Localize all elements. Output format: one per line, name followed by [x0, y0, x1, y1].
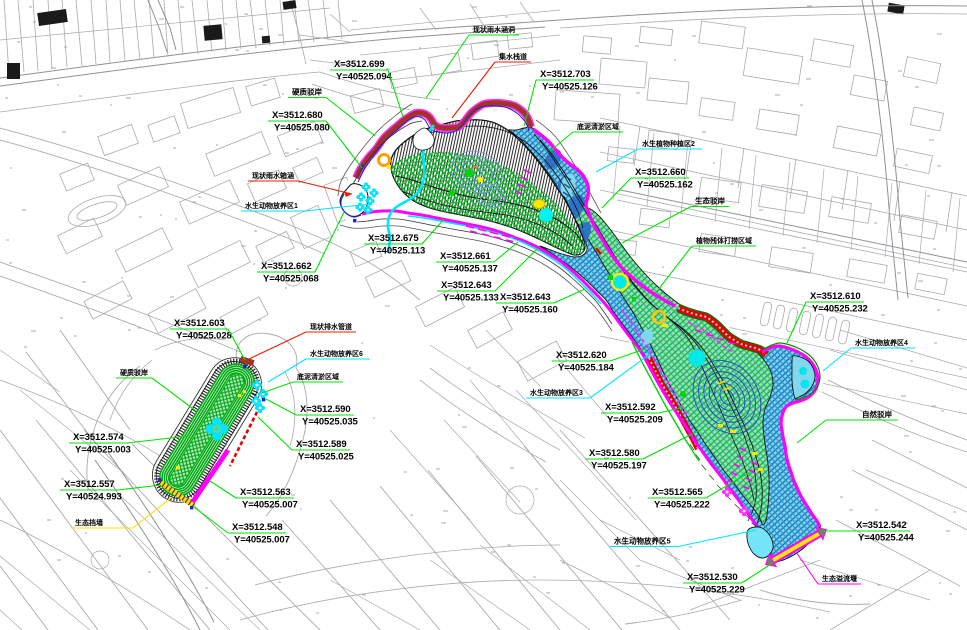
- svg-text:X=3512.643: X=3512.643: [500, 292, 551, 303]
- svg-text:水生动物放养区5: 水生动物放养区5: [614, 536, 671, 546]
- svg-text:X=3512.680: X=3512.680: [272, 110, 323, 121]
- svg-text:X=3512.660: X=3512.660: [635, 167, 686, 178]
- svg-text:X=3512.610: X=3512.610: [810, 291, 861, 302]
- svg-text:水生动物放养区1: 水生动物放养区1: [245, 201, 298, 210]
- svg-text:Y=40525.094: Y=40525.094: [336, 72, 393, 83]
- svg-text:生态溢流堰: 生态溢流堰: [822, 574, 857, 583]
- svg-text:自然驳岸: 自然驳岸: [862, 409, 892, 419]
- svg-text:Y=40525.025: Y=40525.025: [298, 452, 355, 463]
- svg-text:Y=40525.133: Y=40525.133: [443, 293, 499, 304]
- svg-text:Y=40525.232: Y=40525.232: [812, 304, 868, 315]
- svg-text:Y=40525.197: Y=40525.197: [591, 461, 647, 472]
- svg-text:硬质驳岸: 硬质驳岸: [120, 368, 148, 377]
- svg-text:Y=40525.003: Y=40525.003: [75, 445, 131, 456]
- svg-text:X=3512.548: X=3512.548: [232, 522, 283, 533]
- svg-text:X=3512.662: X=3512.662: [261, 261, 312, 272]
- svg-text:Y=40525.137: Y=40525.137: [442, 264, 498, 275]
- svg-text:现状排水管道: 现状排水管道: [310, 322, 352, 331]
- svg-text:X=3512.574: X=3512.574: [73, 432, 124, 443]
- svg-text:X=3512.643: X=3512.643: [441, 280, 492, 291]
- svg-text:底泥清淤区域: 底泥清淤区域: [577, 122, 619, 131]
- svg-text:现状雨水涵洞: 现状雨水涵洞: [473, 25, 515, 34]
- svg-text:X=3512.603: X=3512.603: [174, 318, 225, 329]
- svg-text:X=3512.565: X=3512.565: [652, 487, 703, 498]
- svg-text:X=3512.675: X=3512.675: [368, 233, 419, 244]
- svg-text:Y=40524.993: Y=40524.993: [66, 492, 122, 503]
- svg-text:X=3512.661: X=3512.661: [440, 251, 491, 262]
- svg-text:X=3512.620: X=3512.620: [556, 350, 607, 361]
- svg-text:Y=40525.126: Y=40525.126: [542, 82, 598, 93]
- svg-text:X=3512.530: X=3512.530: [687, 572, 738, 583]
- svg-text:Y=40525.184: Y=40525.184: [558, 363, 615, 374]
- svg-text:Y=40525.080: Y=40525.080: [274, 123, 330, 134]
- svg-text:X=3512.703: X=3512.703: [540, 69, 591, 80]
- svg-text:Y=40525.229: Y=40525.229: [689, 585, 745, 596]
- svg-text:X=3512.542: X=3512.542: [856, 520, 907, 531]
- svg-text:X=3512.557: X=3512.557: [64, 479, 115, 490]
- svg-text:X=3512.563: X=3512.563: [240, 487, 291, 498]
- svg-text:水生动物放养区6: 水生动物放养区6: [310, 349, 363, 358]
- svg-text:X=3512.589: X=3512.589: [296, 439, 347, 450]
- svg-text:Y=40525.160: Y=40525.160: [502, 305, 558, 316]
- svg-text:X=3512.590: X=3512.590: [300, 404, 351, 415]
- svg-text:Y=40525.113: Y=40525.113: [370, 246, 425, 257]
- svg-text:硬质驳岸: 硬质驳岸: [292, 87, 322, 97]
- svg-text:Y=40525.028: Y=40525.028: [176, 331, 232, 342]
- svg-text:Y=40525.222: Y=40525.222: [654, 500, 710, 511]
- svg-text:X=3512.592: X=3512.592: [605, 402, 656, 413]
- svg-text:水生动物放养区3: 水生动物放养区3: [530, 388, 583, 397]
- svg-text:Y=40525.162: Y=40525.162: [637, 180, 693, 191]
- svg-text:植物残体打捞区域: 植物残体打捞区域: [695, 236, 752, 245]
- svg-text:Y=40525.007: Y=40525.007: [242, 500, 298, 511]
- svg-text:X=3512.699: X=3512.699: [334, 59, 385, 70]
- svg-text:Y=40525.209: Y=40525.209: [607, 415, 663, 426]
- svg-text:水生植物种植区2: 水生植物种植区2: [642, 139, 695, 148]
- svg-text:Y=40525.007: Y=40525.007: [234, 535, 290, 546]
- svg-text:Y=40525.244: Y=40525.244: [858, 533, 915, 544]
- svg-text:生态挡墙: 生态挡墙: [75, 518, 103, 527]
- svg-text:水生动物放养区4: 水生动物放养区4: [855, 338, 908, 347]
- svg-text:Y=40525.068: Y=40525.068: [263, 274, 319, 285]
- svg-text:底泥清淤区域: 底泥清淤区域: [297, 372, 339, 381]
- svg-text:生态驳岸: 生态驳岸: [695, 196, 725, 206]
- svg-text:X=3512.580: X=3512.580: [589, 448, 640, 459]
- svg-text:Y=40525.035: Y=40525.035: [302, 417, 359, 428]
- svg-text:集水栈道: 集水栈道: [498, 52, 527, 61]
- svg-text:现状雨水箱涵: 现状雨水箱涵: [252, 171, 294, 180]
